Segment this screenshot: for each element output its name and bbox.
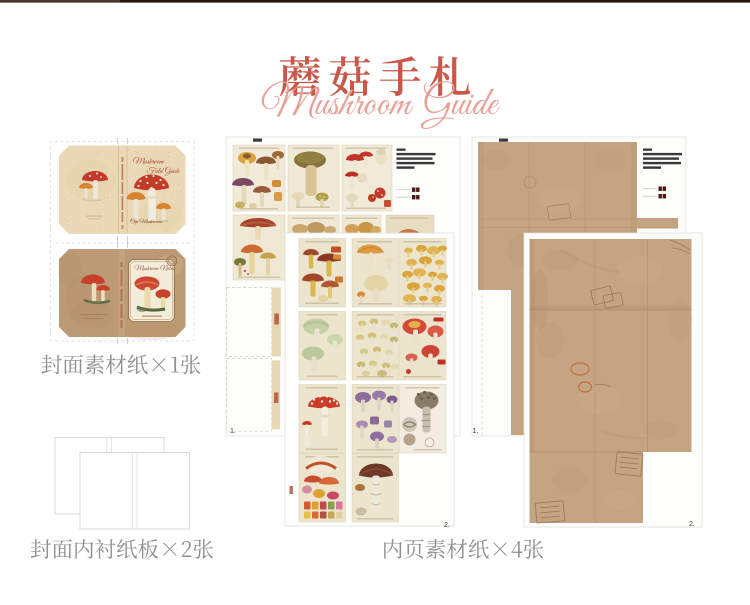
svg-text:1.: 1. bbox=[230, 428, 236, 435]
svg-text:2.: 2. bbox=[689, 521, 695, 528]
svg-text:1.: 1. bbox=[473, 428, 479, 435]
svg-text:2.: 2. bbox=[444, 522, 450, 529]
